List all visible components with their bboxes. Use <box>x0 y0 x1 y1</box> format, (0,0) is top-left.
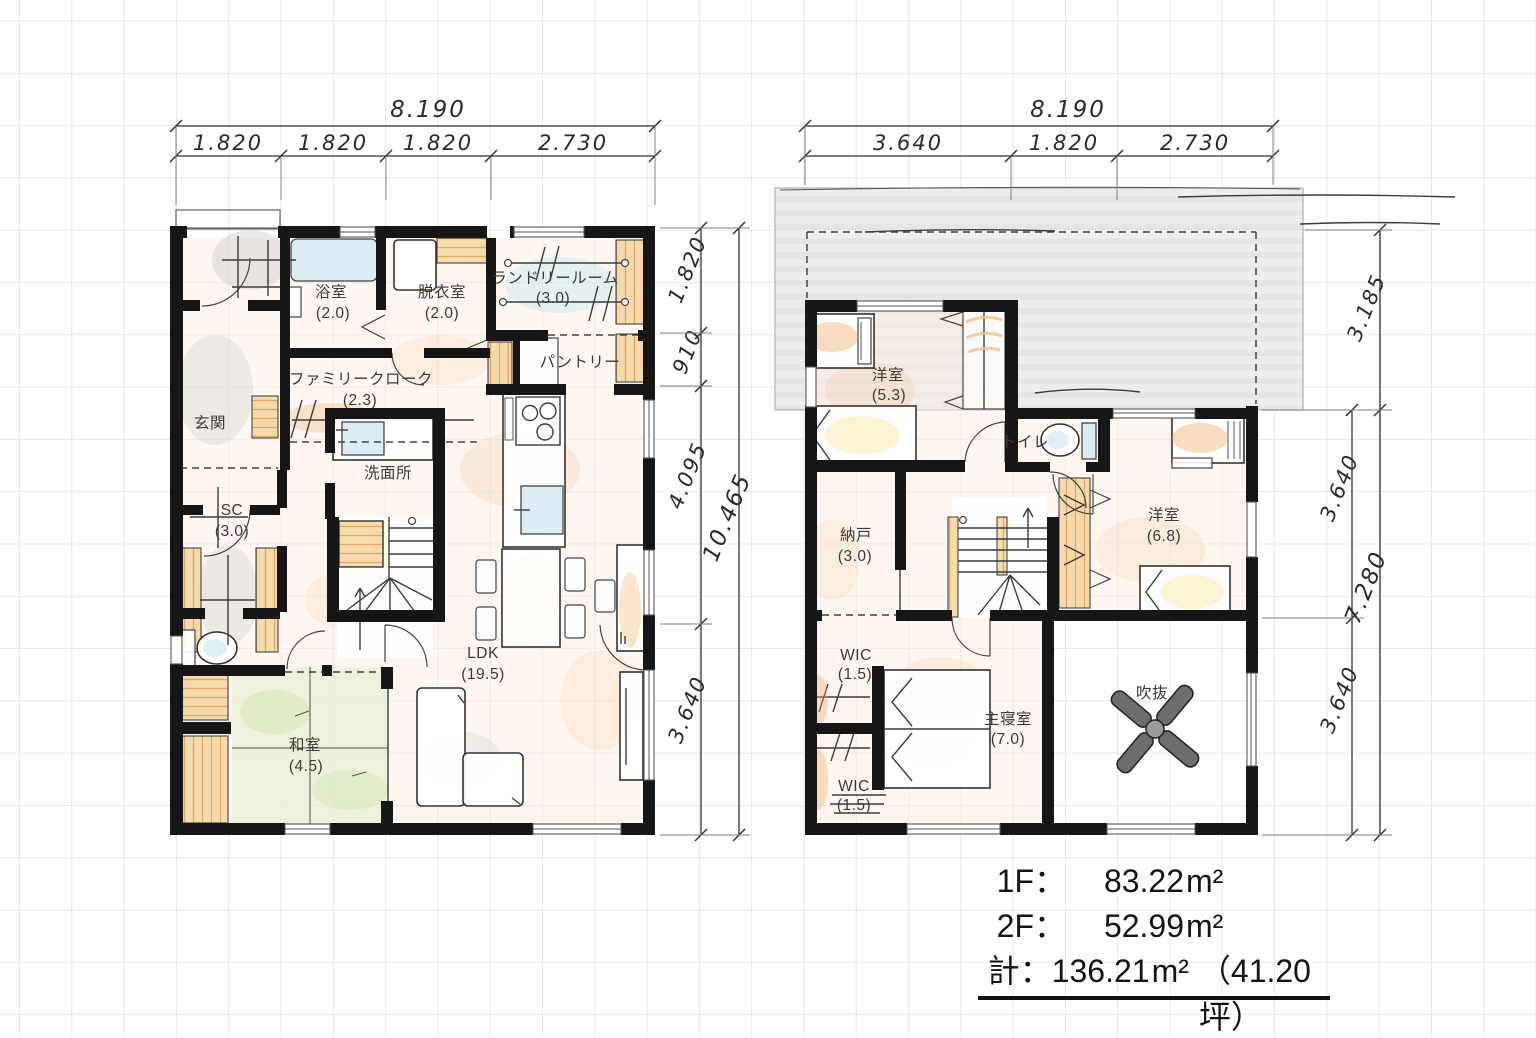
room-size-bedroom-a: (5.3) <box>872 387 906 404</box>
washstand <box>333 414 433 460</box>
dim-2f-side-outer1: 3.185 <box>1342 270 1391 344</box>
summary-label-2f: 2F <box>978 908 1034 945</box>
laundry-closet <box>616 240 644 324</box>
shoe-cabinet <box>252 396 278 438</box>
dim-2f-total-width: 8.190 <box>1030 97 1106 123</box>
room-size-bedroom-b: (6.8) <box>1147 528 1181 545</box>
tv-board <box>620 672 643 780</box>
summary-unit-1f: m² <box>1186 863 1223 900</box>
room-label-sc: SC <box>221 502 244 519</box>
floor1-plan: 浴室 (2.0) 脱衣室 (2.0) ランドリールーム (3.0) パントリー … <box>170 210 655 835</box>
stairs-2f <box>948 497 1047 617</box>
room-label-entrance: 玄関 <box>194 414 226 432</box>
dim-1f-seg3: 1.820 <box>403 131 473 155</box>
floor2-plan: 洋室 (5.3) トイレ 納戸 (3.0) 洋室 (6.8) WIC (1.5)… <box>775 187 1455 835</box>
room-label-bath: 浴室 <box>315 283 347 301</box>
room-size-family-closet: (2.3) <box>343 392 377 409</box>
room-label-toilet: トイレ <box>1001 434 1049 451</box>
washitsu-shelf <box>178 672 228 720</box>
area-summary: 1F：83.22m² 2F：52.99m² 計：136.21m²（41.20坪） <box>978 856 1330 1000</box>
summary-label-1f: 1F <box>978 863 1034 900</box>
dim-2f-seg2: 1.820 <box>1029 131 1099 155</box>
summary-value-2f: 52.99 <box>1066 908 1184 945</box>
summary-unit-2f: m² <box>1186 908 1223 945</box>
room-label-pantry: パントリー <box>540 354 621 371</box>
room-label-bedroom-a: 洋室 <box>872 366 904 384</box>
summary-value-1f: 83.22 <box>1066 863 1184 900</box>
toilet-2f <box>1041 423 1096 459</box>
room-label-storage: 納戸 <box>840 526 872 544</box>
dim-2f-side-inner2: 3.640 <box>1315 662 1364 736</box>
room-size-wic-upper: (1.5) <box>838 666 872 683</box>
summary-label-total: 計 <box>978 946 1020 992</box>
room-label-dressing: 脱衣室 <box>418 283 466 301</box>
dim-1f-seg4: 2.730 <box>538 131 608 155</box>
dim-1f-total-width: 8.190 <box>390 97 466 123</box>
washitsu-oshiire <box>178 736 228 823</box>
room-label-bedroom-b: 洋室 <box>1148 506 1180 524</box>
dim-1f-side-seg1: 1.820 <box>663 232 712 306</box>
room-size-storage: (3.0) <box>838 548 872 565</box>
dim-1f-seg1: 1.820 <box>193 131 263 155</box>
summary-tsubo: （41.20坪） <box>1199 946 1330 1038</box>
room-size-laundry: (3.0) <box>536 290 570 307</box>
summary-row-2f: 2F：52.99m² <box>978 901 1330 946</box>
summary-row-1f: 1F：83.22m² <box>978 856 1330 901</box>
dim-2f-seg1: 3.640 <box>873 131 943 155</box>
room-label-washroom: 洗面所 <box>364 464 412 482</box>
room-size-bath: (2.0) <box>316 305 350 322</box>
room-label-wic-lower: WIC <box>838 778 870 795</box>
room-label-void: 吹抜 <box>1136 684 1168 702</box>
room-label-family-closet: ファミリークローク <box>289 370 433 388</box>
room-size-washitsu: (4.5) <box>289 758 323 775</box>
room-size-sc: (3.0) <box>215 523 249 540</box>
dim-1f-side-seg3: 4.095 <box>663 438 712 512</box>
dim-2f-side-inner1: 3.640 <box>1315 450 1364 524</box>
room-label-wic-upper: WIC <box>840 647 872 664</box>
dim-2f-side-outer2: 7.280 <box>1340 547 1393 627</box>
room-size-ldk: (19.5) <box>461 666 505 683</box>
dressing-shelf <box>437 238 487 263</box>
summary-unit-total: m² <box>1152 953 1189 990</box>
room-size-master: (7.0) <box>991 731 1025 748</box>
dim-2f-seg3: 2.730 <box>1160 131 1230 155</box>
room-size-wic-lower: (1.5) <box>837 797 871 814</box>
desk-bedroom-b <box>1172 417 1244 468</box>
room-size-dressing: (2.0) <box>425 305 459 322</box>
dim-1f-seg2: 1.820 <box>298 131 368 155</box>
summary-row-total: 計：136.21m²（41.20坪） <box>978 946 1330 1000</box>
room-label-laundry: ランドリールーム <box>491 270 619 287</box>
bed-single-b <box>806 406 916 464</box>
kitchen-counter <box>503 393 565 547</box>
summary-value-total: 136.21 <box>1052 953 1150 990</box>
washing-machine <box>394 240 436 290</box>
room-label-ldk: LDK <box>467 645 499 662</box>
kitchen-side-closet <box>488 342 512 385</box>
dim-1f-side-seg4: 3.640 <box>663 672 712 746</box>
master-bed <box>884 670 990 788</box>
dim-1f-side-total: 10.465 <box>698 470 757 565</box>
room-label-washitsu: 和室 <box>289 736 321 754</box>
room-label-master: 主寝室 <box>984 709 1032 728</box>
sc-closet-right <box>256 548 278 652</box>
